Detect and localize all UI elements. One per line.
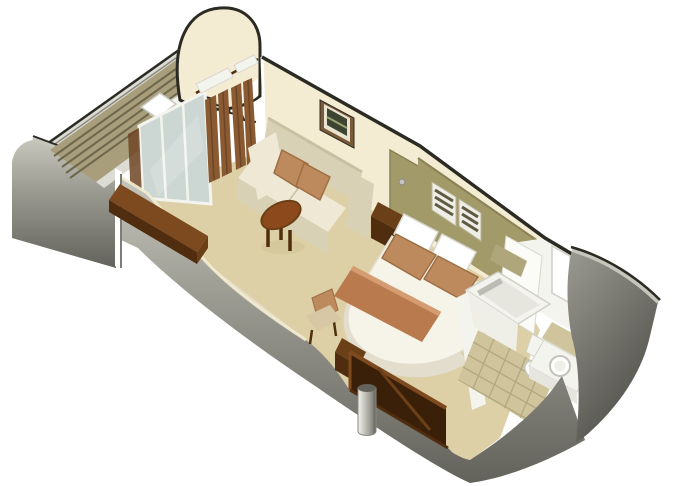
- column-top: [358, 384, 376, 392]
- support-column: [358, 384, 376, 436]
- sink-drain: [555, 361, 566, 372]
- entry-door: [552, 246, 570, 303]
- column-body: [358, 388, 376, 436]
- closet-door-knob: [399, 179, 405, 185]
- floorplan-canvas: [0, 0, 680, 486]
